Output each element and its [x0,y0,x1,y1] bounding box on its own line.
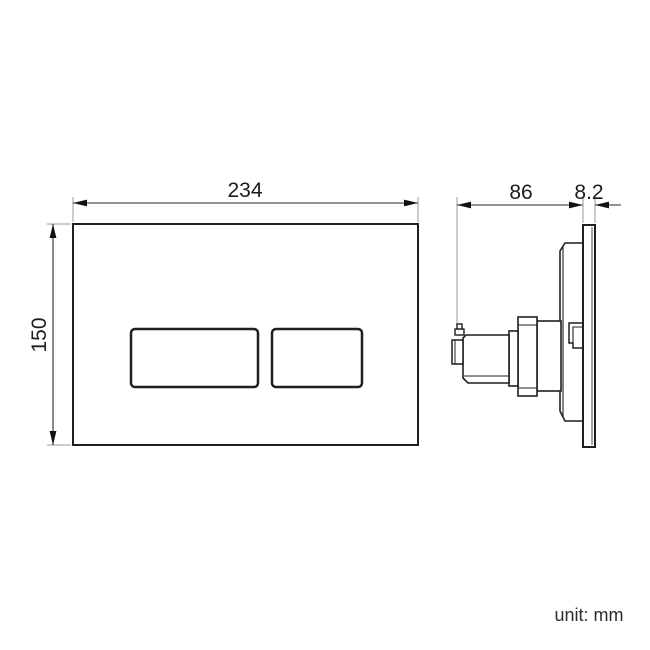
actuator-neck [509,331,518,386]
bleed-valve-base [455,329,464,335]
arrowhead-right-icon [404,200,418,207]
actuator-rear-section [537,321,561,391]
front-width-value: 234 [227,179,262,202]
arrowhead-down-icon [50,431,57,445]
bleed-valve-tip [457,324,462,329]
unit-label: unit: mm [554,605,623,625]
front-view [73,224,418,445]
dim-side-depth: 86 [457,181,583,208]
actuator-end-cap [452,340,463,364]
front-height-value: 150 [28,317,51,352]
arrowhead-left-icon [457,202,471,209]
side-thickness-value: 8.2 [574,181,603,204]
dim-side-thickness: 8.2 [574,181,621,223]
side-view [452,197,595,447]
technical-drawing-canvas: 234 150 [0,0,650,650]
arrowhead-left-icon [73,200,87,207]
side-depth-value: 86 [509,181,532,204]
arrowhead-up-icon [50,224,57,238]
left-flush-button [131,329,258,387]
dim-front-width: 234 [73,179,418,222]
actuator-flange [518,317,537,396]
flush-plate-side [583,225,595,447]
flush-plate-dimension-drawing: 234 150 [0,0,650,650]
dim-front-height: 150 [28,224,71,445]
right-flush-button [272,329,362,387]
